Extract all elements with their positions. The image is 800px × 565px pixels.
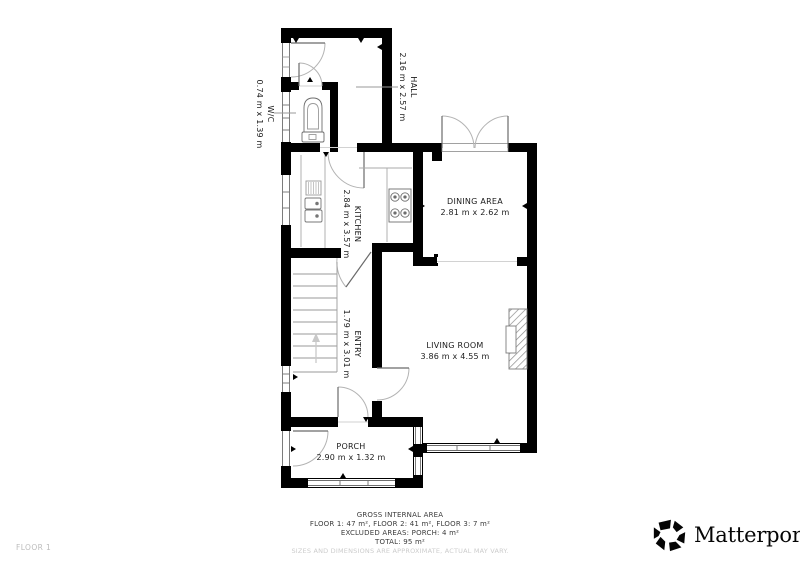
room-label-entry: ENTRY 1.79 m x 3.01 m <box>341 309 363 378</box>
wc-door-arc <box>299 63 322 86</box>
matterport-logo: Matterport® <box>651 515 800 555</box>
room-label-living-room: LIVING ROOM 3.86 m x 4.55 m <box>420 340 489 362</box>
room-dimensions: 2.84 m x 3.57 m <box>341 189 352 258</box>
room-dimensions: 1.79 m x 3.01 m <box>341 309 352 378</box>
room-name: LIVING ROOM <box>420 340 489 351</box>
room-name: DINING AREA <box>440 196 509 207</box>
room-label-kitchen: KITCHEN 2.84 m x 3.57 m <box>341 189 363 258</box>
area-summary-title: GROSS INTERNAL AREA <box>291 511 508 520</box>
staircase <box>293 262 337 372</box>
room-name: HALL <box>408 52 419 121</box>
kitchen-door-arc <box>328 152 364 188</box>
sink-icon <box>305 181 322 222</box>
floorplan-page: HALL 2.16 m x 2.57 m W/C 0.74 m x 1.39 m… <box>0 0 800 565</box>
room-dimensions: 3.86 m x 4.55 m <box>420 351 489 362</box>
room-dimensions: 2.16 m x 2.57 m <box>397 52 408 121</box>
room-label-hall: HALL 2.16 m x 2.57 m <box>397 52 419 121</box>
area-summary-excluded: EXCLUDED AREAS: PORCH: 4 m² <box>291 529 508 538</box>
floor-indicator: FLOOR 1 <box>16 543 51 552</box>
room-name: ENTRY <box>352 309 363 378</box>
stove-icon <box>389 189 411 222</box>
room-name: W/C <box>265 79 276 148</box>
matterport-wordmark: Matterport <box>694 523 800 547</box>
room-dimensions: 2.90 m x 1.32 m <box>316 452 385 463</box>
area-summary-floors: FLOOR 1: 47 m², FLOOR 2: 41 m², FLOOR 3:… <box>291 520 508 529</box>
area-summary-total: TOTAL: 95 m² <box>291 538 508 547</box>
room-name: PORCH <box>316 441 385 452</box>
room-label-porch: PORCH 2.90 m x 1.32 m <box>316 441 385 463</box>
room-dimensions: 2.81 m x 2.62 m <box>440 207 509 218</box>
area-summary: GROSS INTERNAL AREA FLOOR 1: 47 m², FLOO… <box>291 511 508 556</box>
room-label-wc: W/C 0.74 m x 1.39 m <box>254 79 276 148</box>
entry-kitchen-door-arc <box>337 258 346 287</box>
hall-front-door-arc <box>291 43 325 77</box>
entry-living-door-arc <box>377 368 409 400</box>
room-name: KITCHEN <box>352 189 363 258</box>
toilet-icon <box>302 98 324 142</box>
fireplace-icon <box>506 309 527 369</box>
room-dimensions: 0.74 m x 1.39 m <box>254 79 265 148</box>
up-arrow-icon <box>312 333 320 363</box>
room-label-dining-area: DINING AREA 2.81 m x 2.62 m <box>440 196 509 218</box>
entry-porch-door-arc <box>338 387 368 417</box>
disclaimer-text: SIZES AND DIMENSIONS ARE APPROXIMATE, AC… <box>291 547 508 556</box>
matterport-pinwheel-icon <box>651 515 689 555</box>
